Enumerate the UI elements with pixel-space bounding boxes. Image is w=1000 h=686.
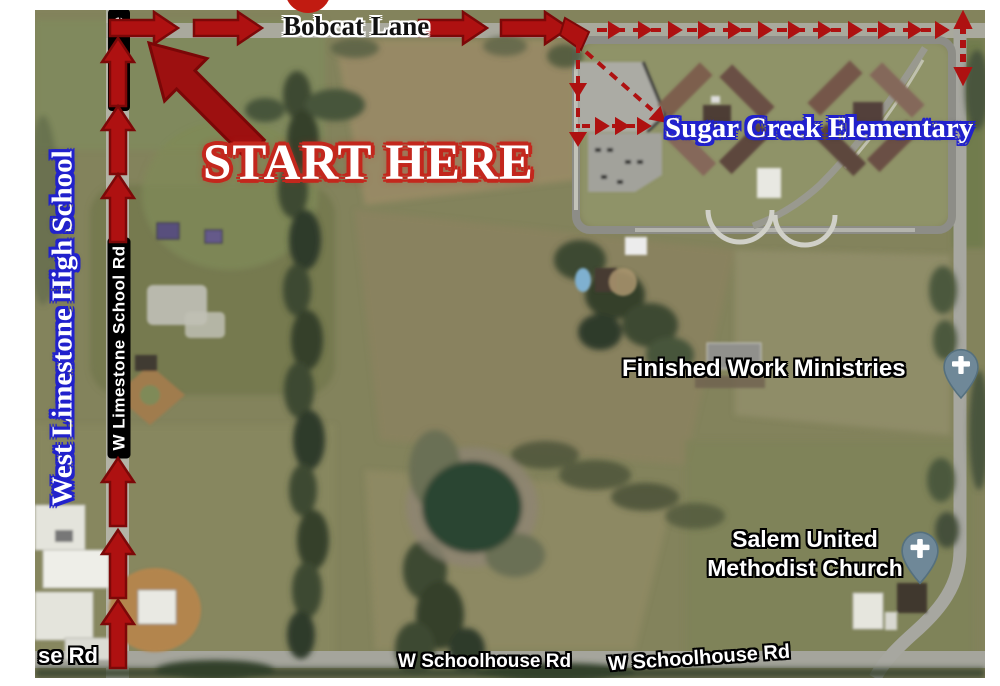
place-label-sugar-creek-elementary: Sugar Creek Elementary [665,114,973,143]
road-label-w-schoolhouse-rd-center: W Schoolhouse Rd [398,652,571,671]
road-label-bobcat-lane: Bobcat Lane [283,13,429,40]
place-label-west-limestone-high-school: West Limestone High School [49,150,78,505]
start-here-label: START HERE [203,138,534,189]
place-label-salem-united-methodist-church: Salem United Methodist Church [660,525,950,583]
route-arrows [102,12,589,668]
salem-label-line2: Methodist Church [660,554,950,583]
place-label-finished-work-ministries: Finished Work Ministries [622,357,906,381]
flyer-page: e W Limestone School Rd [0,0,1000,686]
route-arrows-north [102,38,134,668]
map-canvas[interactable]: e W Limestone School Rd [35,10,985,678]
salem-label-line1: Salem United [660,525,950,554]
church-pin-icon [943,348,979,400]
route-double-arrow [955,12,971,84]
road-label-se-rd: se Rd [38,645,98,667]
